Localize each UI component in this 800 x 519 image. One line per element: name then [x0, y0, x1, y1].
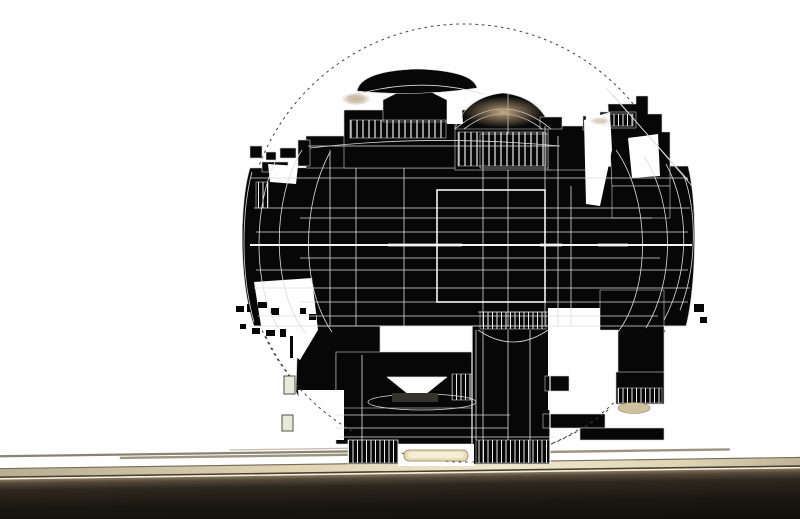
left-frag-3: [280, 148, 296, 158]
pagoda-colonnade: [350, 120, 446, 138]
right-bar-2: [543, 414, 605, 428]
mid-tower: [548, 126, 586, 170]
cut-pagoda-dome-gap: [447, 90, 463, 124]
cut-column-right-gap: [548, 308, 600, 410]
wireframe-render: [0, 0, 800, 519]
right-brass-highlight: [589, 117, 611, 125]
dome-colonnade: [458, 132, 546, 166]
lit-pill: [404, 450, 468, 461]
dome-brass-highlight: [461, 96, 545, 128]
grey-slab: [392, 393, 438, 402]
green-box-1: [284, 376, 295, 394]
left-brass-highlight: [341, 93, 371, 106]
small-left-ticks: [452, 374, 472, 400]
basket-ticks: [480, 312, 546, 329]
column-foot-ticks: [476, 440, 550, 463]
green-box-2: [282, 415, 293, 431]
tan-ellipse: [618, 403, 650, 414]
left-frag-1: [250, 146, 262, 158]
viewport: [0, 0, 800, 519]
right-bar-3: [580, 428, 664, 440]
right-mid-block: [612, 186, 670, 218]
right-bar-1: [545, 376, 569, 391]
left-frag-2: [266, 152, 276, 160]
left-foot-ticks: [348, 440, 398, 463]
right-foot-ticks: [618, 388, 662, 403]
